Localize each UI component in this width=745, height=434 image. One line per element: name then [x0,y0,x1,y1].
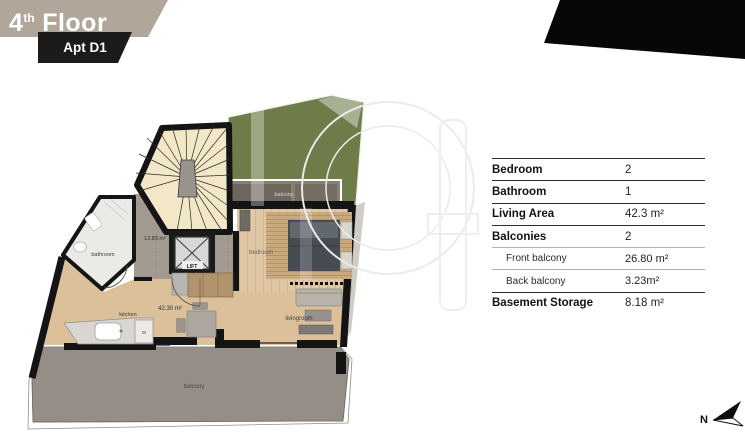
front-balcony-label: balcony [184,384,205,390]
apartment-badge: Apt D1 [38,32,132,63]
floor-banner: 4th Floor [0,0,168,37]
closet-icon [240,210,250,231]
back-balcony-label: balcony [275,192,294,198]
spec-value: 8.18 m² [625,297,664,309]
spec-label: Balconies [492,231,625,243]
room-label-bathroom: bathroom [91,252,115,258]
floor-ordinal: th [23,11,34,25]
compass: N [700,401,743,426]
spec-value: 3.23m² [625,275,659,287]
room-label-bedroom: bedroom [249,250,273,256]
spec-row-back-balcony: Back balcony 3.23m² [492,269,705,291]
spec-value: 2 [625,231,631,243]
spec-row-living-area: Living Area 42.3 m² [492,203,705,225]
spec-table: Bedroom 2 Bathroom 1 Living Area 42.3 m²… [492,158,705,314]
spec-row-bedroom: Bedroom 2 [492,158,705,180]
spec-row-bathroom: Bathroom 1 [492,180,705,202]
floor-number: 4 [9,9,23,37]
toilet-icon [74,242,87,252]
living-area-label: 42.30 m² [158,306,182,312]
lift-label: LIFT [187,264,198,270]
spec-label: Bedroom [492,164,625,176]
stair-newel [178,160,197,197]
room-label-livingroom: livingroom [285,316,312,322]
sofa-icon [296,289,342,306]
tv-unit-icon [299,325,333,334]
spec-row-basement-storage: Basement Storage 8.18 m² [492,292,705,314]
spec-row-balconies: Balconies 2 [492,225,705,247]
washer-label: w [141,330,146,336]
kitchen-sink-icon [95,323,121,340]
spec-label: Bathroom [492,186,625,198]
spec-value: 2 [625,164,631,176]
flyer-page: bathroom 13.83 m² kitchen 42.30 m² livin… [0,0,745,434]
spec-value: 42.3 m² [625,208,664,220]
spec-value: 26.80 m² [625,253,668,265]
spec-label: Basement Storage [492,297,625,309]
spec-label: Living Area [492,208,625,220]
spec-value: 1 [625,186,631,198]
room-label-kitchen: kitchen [119,312,136,318]
corner-decoration [544,0,745,59]
compass-north-label: N [700,414,708,426]
hall-area-label: 13.83 m² [144,236,166,242]
compass-needle-icon [713,401,741,420]
spec-row-front-balcony: Front balcony 26.80 m² [492,247,705,269]
spec-label: Back balcony [492,276,625,287]
spec-label: Front balcony [492,253,625,264]
